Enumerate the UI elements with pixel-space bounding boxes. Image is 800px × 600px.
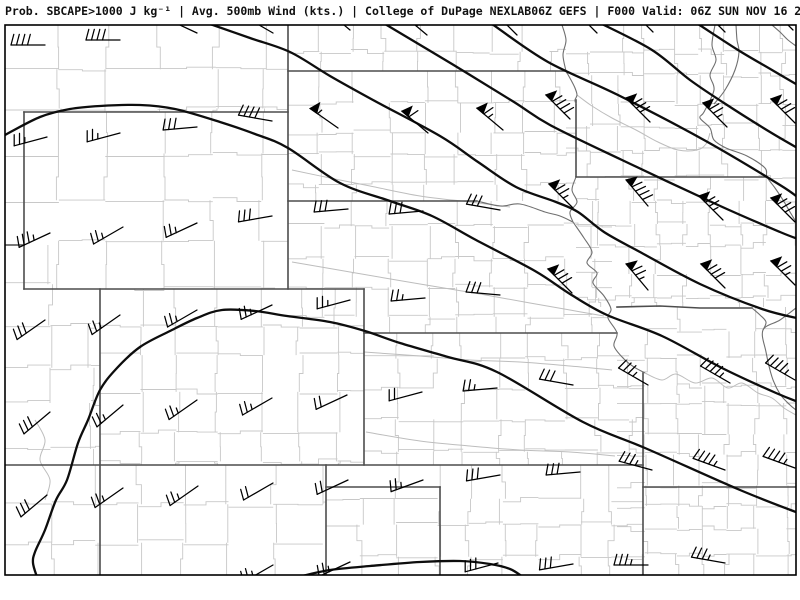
wind-barb [540,369,574,385]
wind-barb [88,315,120,335]
wind-barb [240,398,272,415]
weather-map [0,0,800,600]
wind-barb [573,5,597,33]
wind-barb [87,129,120,141]
wind-barb [164,223,197,237]
wind-barb [477,104,503,130]
wind-barb [540,557,574,570]
wind-barb [239,209,273,222]
wind-barb [241,565,273,582]
wind-barb [14,133,47,145]
wind-barb [766,355,795,380]
wind-barb [389,388,422,400]
wind-barb [626,94,650,122]
rivers-minor [35,95,796,500]
wind-barb [771,194,795,222]
wind-barb [241,483,273,500]
wind-barb [314,200,348,212]
wind-barb [619,452,652,470]
wind-barb [629,4,653,32]
height-contour [33,309,800,577]
wind-barb [402,107,428,133]
height-contour [5,105,800,403]
wind-barb [86,29,120,40]
wind-barb [19,412,50,434]
wind-barb [317,296,350,308]
wind-barb [11,34,45,45]
wind-barb [548,265,572,293]
wind-barb [239,105,273,121]
wind-barb [166,12,197,33]
wind-barb [493,7,517,35]
wind-barb [324,4,350,30]
wind-barb [163,118,197,130]
wind-barb [391,290,425,301]
wind-barb [693,449,725,470]
wind-barb [314,395,347,409]
wind-barb [701,260,725,288]
wind-barb [401,9,427,35]
wind-barb [92,405,123,427]
wind-barb [244,10,273,33]
wind-barb [310,103,338,128]
wind-barb [13,320,45,340]
wind-barb [692,547,726,563]
wind-barb [771,257,795,285]
wind-barb [165,400,197,420]
map-layers [5,2,800,582]
wind-barb [389,202,423,214]
wind-barb [16,495,47,517]
wind-barb [763,447,795,468]
